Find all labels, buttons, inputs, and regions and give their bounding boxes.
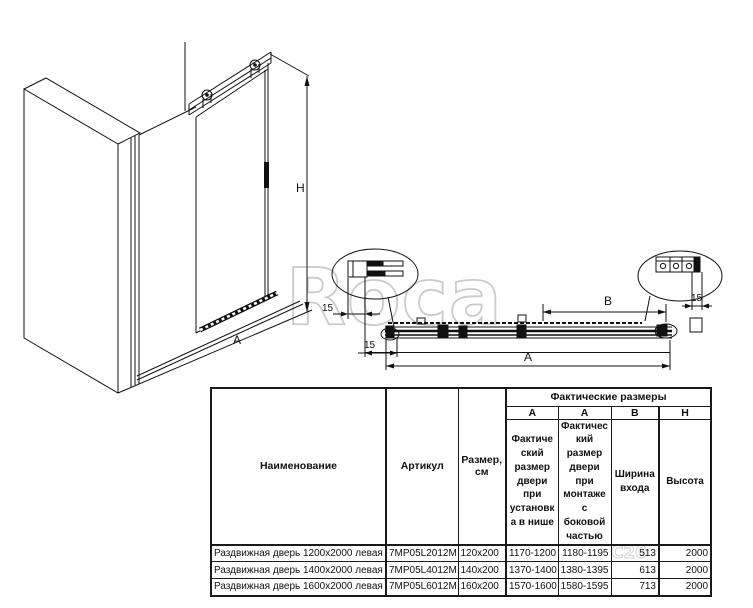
cell-name: Раздвижная дверь 1600х2000 левая [211,579,386,596]
cell-size: 140x200 [458,562,506,579]
cell-article: 7MP05L2012M [386,545,458,562]
cell-a-side: 1180-1195 [558,545,611,562]
wall-panel-top [24,78,140,144]
wall-profile-plan [690,318,702,332]
cell-b: 613 [611,562,659,579]
cell-name: Раздвижная дверь 1400х2000 левая [211,562,386,579]
desc-side: Фактический размер двери при монтаже с б… [558,419,611,545]
cell-size: 160x200 [458,579,506,596]
col-header-name: Наименование [211,388,386,545]
sub-header-b: В [611,406,659,419]
cell-b: 513 [611,545,659,562]
cell-name: Раздвижная дверь 1200х2000 левая [211,545,386,562]
clamp [657,325,667,336]
cell-article: 7MP05L4012M [386,562,458,579]
offset-label-top: 15 [322,303,334,314]
group-header-actual-sizes: Фактические размеры [506,388,711,406]
door-handle [264,162,269,188]
table-row: Раздвижная дверь 1400х2000 левая 7MP05L4… [211,562,711,579]
dimension-label-a-iso: A [233,333,241,347]
isometric-view: H A [24,42,312,393]
cell-a-niche: 1570-1600 [506,579,558,596]
cell-h: 2000 [659,562,711,579]
desc-entry-width: Ширина входа [611,419,659,545]
cell-b: 713 [611,579,659,596]
cell-h: 2000 [659,545,711,562]
col-header-article: Артикул [386,388,458,545]
cell-a-niche: 1370-1400 [506,562,558,579]
clamp [438,325,448,337]
bottom-rail-hatch [200,293,277,330]
shower-door-spec-sheet: Roca C20 [0,0,753,608]
fixed-panel-top-edge [139,107,196,135]
cell-size: 120x200 [458,545,506,562]
sub-header-a1: А [506,406,558,419]
table-row: Раздвижная дверь 1200х2000 левая 7MP05L2… [211,545,711,562]
wall-panel [24,89,118,393]
sub-header-h: Н [659,406,711,419]
stopper [518,315,526,322]
detail-right-leader [645,296,650,321]
desc-height: Высота [659,419,711,545]
sub-header-a2: А [558,406,611,419]
offset-label-right: 15 [691,293,703,304]
offset-label-bottom: 15 [364,340,376,351]
cell-h: 2000 [659,579,711,596]
col-header-size: Размер, см [458,388,506,545]
desc-niche: Фактический размер двери при установка в… [506,419,558,545]
detail-circle-right: 15 [638,251,722,321]
dimension-label-a-plan: A [524,350,532,364]
cell-article: 7MP05L6012M [386,579,458,596]
cell-a-niche: 1170-1200 [506,545,558,562]
dimension-label-h: H [296,181,305,195]
wall-profile-edge [131,135,139,387]
clamp [459,326,467,337]
cell-a-side: 1380-1395 [558,562,611,579]
clamp [517,325,526,337]
table-row: Раздвижная дверь 1600х2000 левая 7MP05L6… [211,579,711,596]
spec-table: Наименование Артикул Размер, см Фактичес… [210,387,712,597]
dimension-label-b: B [604,294,612,308]
cell-a-side: 1580-1595 [558,579,611,596]
tray-edges [137,301,303,380]
